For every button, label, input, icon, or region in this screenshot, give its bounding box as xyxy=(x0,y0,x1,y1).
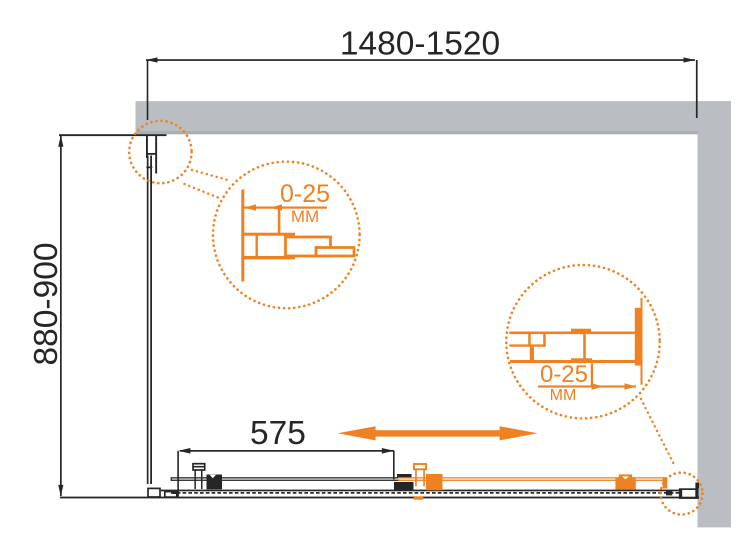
svg-text:MM: MM xyxy=(550,387,577,404)
svg-text:0-25: 0-25 xyxy=(280,180,330,208)
svg-text:880-900: 880-900 xyxy=(28,243,65,366)
svg-text:0-25: 0-25 xyxy=(540,361,588,388)
svg-text:MM: MM xyxy=(291,207,319,226)
svg-text:575: 575 xyxy=(250,415,306,452)
svg-text:1480-1520: 1480-1520 xyxy=(340,26,500,63)
